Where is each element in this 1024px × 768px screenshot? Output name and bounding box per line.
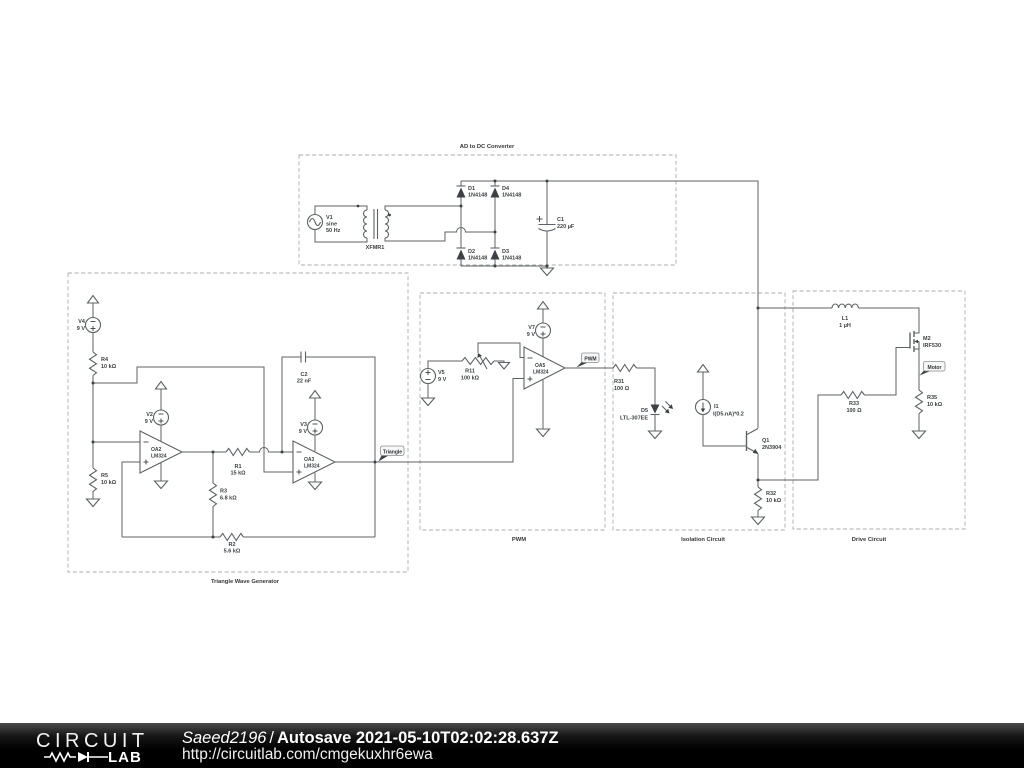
component-value: 10 kΩ [927,402,943,408]
component-l1-inductor[interactable]: L1 1 µH [832,304,858,329]
ground-c1 [541,268,554,276]
component-name: OA2 [151,447,162,453]
component-value: 10 kΩ [101,364,117,370]
primary-coil-icon [364,210,368,238]
component-name: L1 [842,316,848,322]
power-arrow-icon [156,382,167,390]
component-v7-source[interactable]: V7 9 V [527,323,551,338]
sine-icon [310,219,321,226]
component-name: V5 [438,370,445,376]
resistor-icon [613,365,637,372]
component-d1-diode[interactable]: D1 1N4148 [457,186,488,199]
mosfet-body-arrowhead [914,340,918,343]
component-name: XFMR1 [366,245,385,251]
section-title: Isolation Circuit [681,537,725,543]
ground-oa5 [537,429,550,437]
resistor-icon [210,483,217,507]
component-value: 9 V [145,419,154,425]
component-value: LM324 [304,464,320,470]
component-name: D1 [468,186,475,192]
component-name: R3 [220,489,227,495]
junction-dots [92,180,760,539]
component-name: R11 [465,369,475,375]
circuitlab-logo[interactable]: CIRCUIT LAB [36,731,186,765]
section-title: PWM [512,537,526,543]
ground-r32 [752,517,765,525]
phase-dot [388,214,391,217]
component-name: D2 [468,249,475,255]
schematic: AD to DC Converter Triangle Wave Generat… [0,0,1024,768]
ground-r35 [913,431,926,439]
circuit-canvas: AD to DC Converter Triangle Wave Generat… [0,0,1024,768]
current-arrowhead [701,409,705,413]
component-value: 220 µF [557,224,575,230]
power-flag-v2 [156,382,167,390]
component-value: 15 kΩ [230,471,246,477]
component-value: 1N4148 [502,256,521,262]
component-value: 9 V [527,332,536,338]
logo-lab: LAB [108,749,142,766]
component-value: 10 kΩ [101,480,117,486]
component-r4-resistor[interactable]: R4 10 kΩ [90,352,117,376]
ground-icon [309,482,322,490]
component-value: 6.8 kΩ [220,496,237,502]
ground-icon [422,398,435,406]
ground-icon [752,517,765,525]
bjt-collector [747,429,758,435]
ground-icon [155,481,168,489]
section-title: AD to DC Converter [460,144,515,150]
component-name: I1 [714,404,719,410]
component-value: 10 kΩ [766,498,782,504]
power-flag-v3 [310,391,321,399]
component-q1-npn-transistor[interactable]: Q1 2N3904 [747,429,783,455]
component-name: R2 [228,542,235,548]
component-value: LM324 [151,454,167,460]
section-ad-dc-converter: AD to DC Converter [299,144,676,265]
logo-wordmark: CIRCUIT [36,731,186,751]
component-oa5-opamp[interactable]: OA5 LM324 [524,347,565,389]
component-value: LM324 [533,370,549,376]
component-name: V7 [528,325,535,331]
component-d5-led[interactable]: D5 LTL-307EE [620,402,673,422]
author-name: Saeed2196 [182,729,266,747]
component-value: 50 Hz [326,228,341,234]
net-flag-motor[interactable]: Motor [920,362,946,376]
component-r32-resistor[interactable]: R32 10 kΩ [755,487,782,511]
component-name: OA3 [304,457,315,463]
component-name: R5 [101,473,108,479]
power-flag-v4 [88,296,99,304]
section-title: Triangle Wave Generator [211,579,280,585]
component-d4-diode[interactable]: D4 1N4148 [491,186,522,199]
component-name: R35 [927,395,937,401]
ground-v5 [422,398,435,406]
component-r11-potentiometer[interactable]: R11 100 kΩ [461,353,494,382]
diode-icon [491,188,500,198]
wires [93,181,919,537]
component-value: 100 Ω [846,408,862,414]
ground-r11 [499,363,510,370]
component-name: C1 [557,217,564,223]
diode-icon [457,250,466,260]
component-r35-resistor[interactable]: R35 10 kΩ [916,390,943,414]
component-d3-diode[interactable]: D3 1N4148 [491,248,522,262]
component-name: R1 [234,464,241,470]
resistor-icon [220,534,244,541]
component-name: D4 [502,186,510,192]
secondary-coil-icon [385,210,389,238]
component-i1-current-source[interactable]: I1 I(D5.nA)*0.2 [696,400,744,418]
section-box [68,273,408,572]
led-icon [651,405,660,414]
component-value: 9 V [77,326,86,332]
resistor-icon [916,390,923,414]
component-value: 22 nF [297,379,312,385]
component-value: 5.6 kΩ [224,549,241,555]
component-v5-source[interactable]: V5 9 V [421,369,447,384]
component-oa3-opamp[interactable]: OA3 LM324 [293,441,335,483]
flag-label: Motor [928,365,942,371]
ground-d5 [649,431,662,439]
resistor-diode-icon [44,751,108,763]
component-value: LTL-307EE [620,416,648,422]
net-flag-triangle[interactable]: Triangle [379,446,405,462]
component-v4-source[interactable]: V4 9 V [77,318,101,333]
component-name: Q1 [762,438,769,444]
section-title: Drive Circuit [852,537,887,543]
component-name: C2 [300,372,307,378]
component-name: D3 [502,249,509,255]
component-name: OA5 [535,363,546,369]
power-arrow-icon [88,296,99,304]
component-value: 1 µH [839,323,851,329]
component-r1-resistor[interactable]: R1 15 kΩ [226,449,250,477]
resistor-icon [90,468,97,492]
component-name: V3 [300,422,307,428]
resistor-icon [755,487,762,511]
component-v3-source[interactable]: V3 9 V [299,420,323,435]
component-value: 1N4148 [468,193,487,199]
flag-label: PWM [584,357,596,363]
power-arrow-icon [310,391,321,399]
section-box [793,291,965,529]
ground-icon [537,429,550,437]
component-name: R32 [766,491,776,497]
resistor-icon [462,358,494,365]
power-arrow-icon [698,365,709,373]
core-icon [374,209,378,239]
section-box [299,155,676,265]
component-name: R33 [849,401,859,407]
component-r3-resistor[interactable]: R3 6.8 kΩ [210,483,238,507]
diode-icon [491,250,500,260]
diode-icon [457,188,466,198]
component-value: 100 Ω [614,386,630,392]
component-r33-resistor[interactable]: R33 100 Ω [841,392,865,415]
component-c1-capacitor[interactable]: C1 220 µF [537,216,575,231]
circuit-url[interactable]: http://circuitlab.com/cmgekuxhr6ewa [182,747,559,763]
phase-dot [357,205,360,208]
ground-icon [913,431,926,439]
component-name: R31 [614,379,624,385]
component-value: 2N3904 [762,445,782,451]
capacitor-plate [539,229,556,232]
component-name: V4 [78,319,86,325]
resistor-icon [90,352,97,376]
component-d2-diode[interactable]: D2 1N4148 [457,248,488,262]
resistor-icon [841,392,865,399]
component-c2-capacitor[interactable]: C2 22 nF [297,352,312,385]
footer-bar: CIRCUIT LAB Saeed2196/Autosave 2021-05-1… [0,723,1024,768]
flag-label: Triangle [383,450,402,456]
power-flag-i1 [698,365,709,373]
component-value: I(D5.nA)*0.2 [713,412,744,418]
component-name: M2 [923,336,931,342]
ground-oa3 [309,482,322,490]
ground-icon [499,363,510,370]
ground-icon [649,431,662,439]
ground-icon [87,499,100,507]
title-separator: / [266,729,277,747]
inductor-icon [832,304,858,308]
component-value: 100 kΩ [461,376,480,382]
ground-oa2 [155,481,168,489]
ground-icon [541,268,554,276]
power-arrow-icon [538,302,549,310]
component-value: 9 V [438,377,447,383]
component-m2-nmos[interactable]: M2 IRF530 [910,331,941,352]
component-value: IRF530 [923,343,941,349]
resistor-icon [226,449,250,456]
component-xfmr1-transformer[interactable]: XFMR1 [357,205,391,251]
autosave-title: Autosave 2021-05-10T02:02:28.637Z [277,729,559,747]
component-value: 9 V [299,429,308,435]
wiper-arrowhead [477,353,482,358]
component-r5-resistor[interactable]: R5 10 kΩ [90,468,117,492]
component-name: D5 [641,408,648,414]
component-value: 1N4148 [468,256,487,262]
component-name: V1 [326,215,333,221]
component-r31-resistor[interactable]: R31 100 Ω [613,365,637,393]
component-name: V2 [146,412,153,418]
component-v2-source[interactable]: V2 9 V [145,410,169,425]
component-name: R4 [101,357,109,363]
ground-r5 [87,499,100,507]
component-value: 1N4148 [502,193,521,199]
power-flag-v7 [538,302,549,310]
section-drive-circuit: Drive Circuit [793,291,965,543]
circuit-title: Saeed2196/Autosave 2021-05-10T02:02:28.6… [182,730,559,747]
component-v1-sine-source[interactable]: V1 sine 50 Hz [308,215,341,235]
net-flag-pwm[interactable]: PWM [577,353,600,368]
section-box [613,293,785,530]
component-type: sine [326,222,337,228]
component-r2-resistor[interactable]: R2 5.6 kΩ [220,534,244,555]
